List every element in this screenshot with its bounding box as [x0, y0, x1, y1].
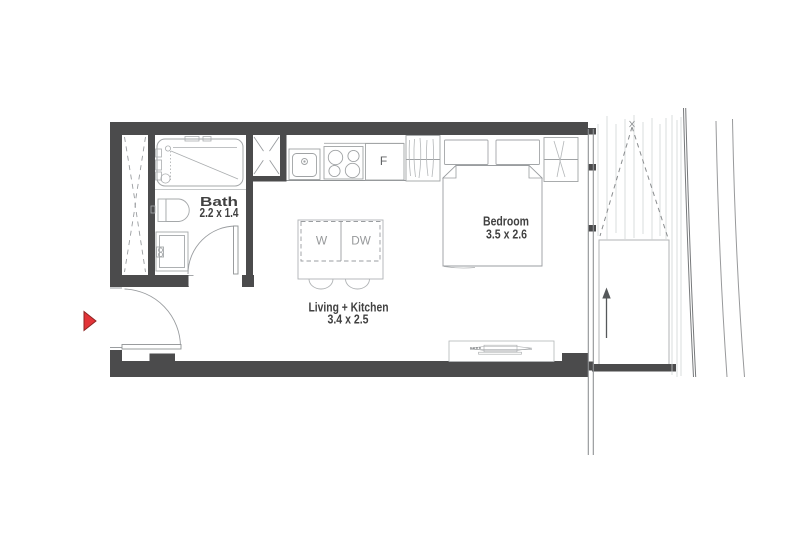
svg-text:Bedroom: Bedroom	[483, 215, 529, 229]
svg-text:3.4 x 2.5: 3.4 x 2.5	[328, 313, 369, 327]
svg-text:F: F	[380, 154, 387, 168]
svg-text:DW: DW	[351, 234, 371, 248]
svg-text:3.5 x 2.6: 3.5 x 2.6	[486, 228, 527, 242]
svg-text:W: W	[316, 234, 328, 248]
svg-text:2.2 x 1.4: 2.2 x 1.4	[200, 206, 239, 220]
